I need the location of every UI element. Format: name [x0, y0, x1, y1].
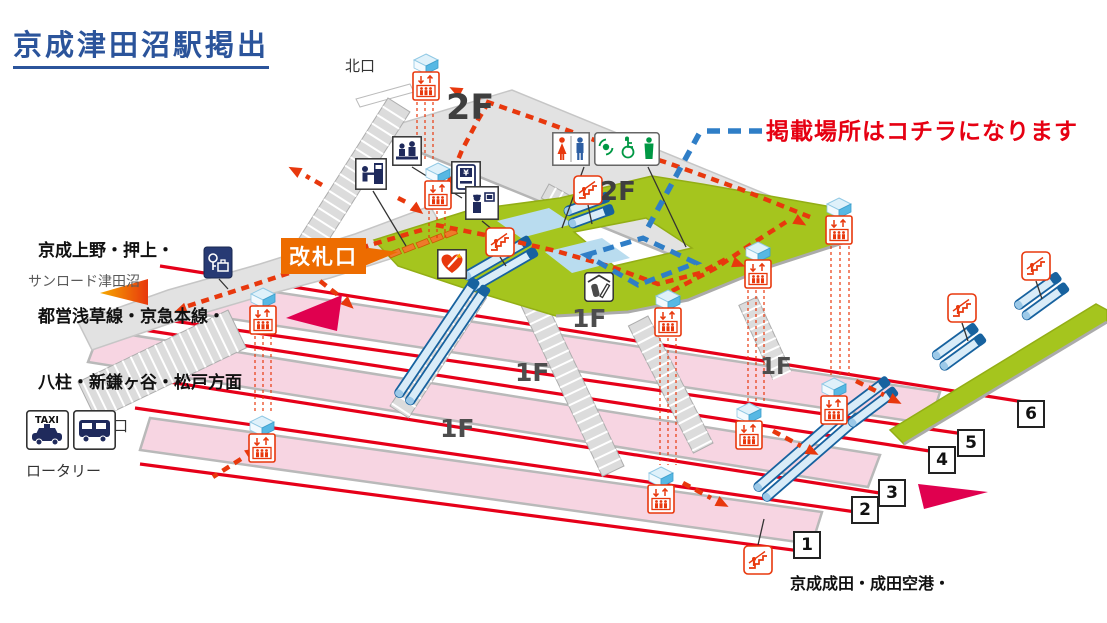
accessible-toilet-icon — [594, 132, 660, 170]
taxi-icon: TAXI — [26, 410, 69, 454]
escalator-icon — [744, 546, 772, 574]
floor-label-1f: 1F — [515, 358, 549, 387]
elevator-icon — [648, 467, 674, 513]
route-arrowhead — [286, 162, 303, 178]
elevator-icon — [745, 242, 771, 288]
escalator-icon — [574, 176, 602, 204]
floor-label-1f: 1F — [760, 354, 792, 380]
floor-label-2f-concourse: 2F — [600, 177, 636, 207]
billboard-annotation: 掲載場所はコチラになります — [766, 112, 1078, 146]
elevator-icon — [249, 416, 275, 462]
page-title: 京成津田沼駅掲出 — [13, 22, 269, 69]
escalator — [930, 322, 987, 373]
platform-number-6: 6 — [1017, 400, 1045, 428]
elevator-icon — [425, 163, 451, 209]
floor-label-1f: 1F — [440, 414, 474, 443]
ticket-counter-icon — [392, 136, 422, 170]
directions-west: 京成上野・押上・ 都営浅草線・京急本線・ 八柱・新鎌ヶ谷・松戸方面 — [38, 196, 242, 416]
elevator-icon — [826, 198, 852, 244]
coin-locker-icon — [203, 246, 233, 283]
route-arrow — [306, 176, 322, 185]
elevator-icon — [250, 288, 276, 334]
elevator-icon — [413, 54, 439, 100]
svg-text:¥: ¥ — [463, 169, 469, 178]
elevator-icon — [821, 378, 847, 424]
elevator-icon — [655, 290, 681, 336]
ticket-gate-label: 改札口 — [281, 238, 366, 274]
restroom-icon — [552, 132, 590, 170]
platform-number-1: 1 — [793, 531, 821, 559]
rotary-label: ロータリー — [26, 460, 101, 481]
escalator-icon — [1022, 252, 1050, 280]
east-overpass-ramp — [890, 304, 1107, 444]
platform-number-2: 2 — [851, 496, 879, 524]
elevator-icon — [736, 403, 762, 449]
platform-number-5: 5 — [957, 429, 985, 457]
platform-number-4: 4 — [928, 446, 956, 474]
ticket-machine-icon — [355, 158, 387, 194]
north-exit-label: 北口 — [345, 55, 375, 76]
train-direction-arrow — [918, 484, 988, 509]
floor-label-1f: 1F — [572, 304, 606, 333]
bus-icon — [73, 410, 116, 454]
route-arrow — [398, 198, 408, 203]
escalator-icon — [948, 294, 976, 322]
platform-number-3: 3 — [878, 479, 906, 507]
station-map: 京成津田沼駅掲出 掲載場所はコチラになります 改札口 北口 南口 サンロード津田… — [0, 0, 1107, 623]
floor-label-2f-deck: 2F — [446, 88, 494, 128]
kiosk-icon — [584, 272, 614, 306]
staff-gate-icon — [465, 186, 499, 224]
escalator-icon — [486, 228, 514, 256]
aed-icon — [437, 249, 467, 283]
